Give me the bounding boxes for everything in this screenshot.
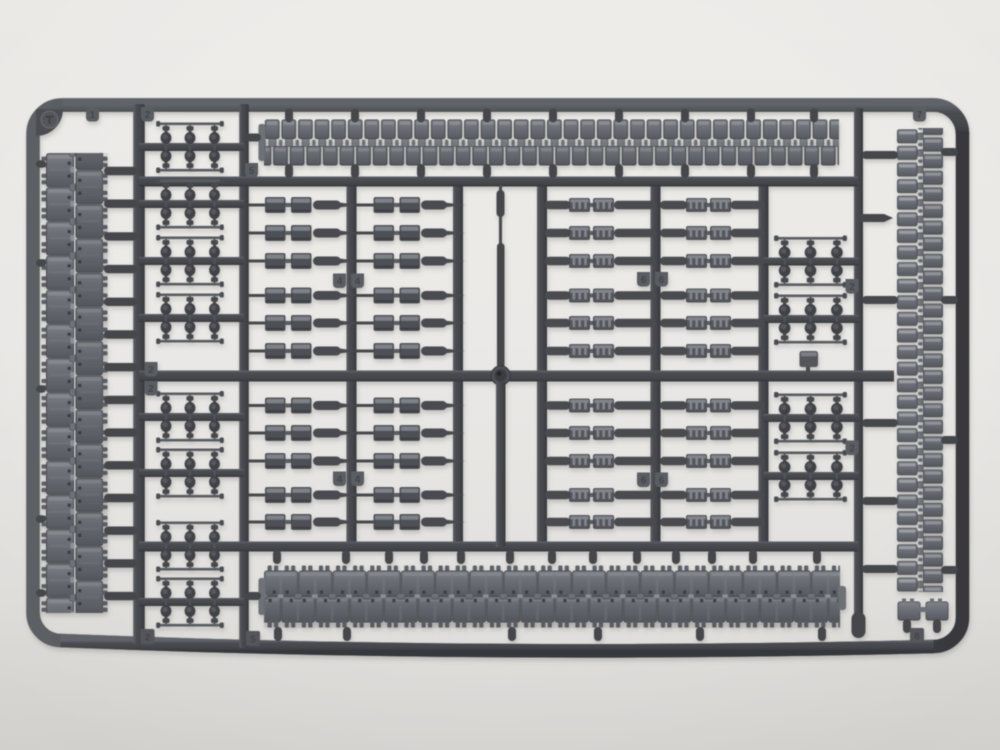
svg-text:2: 2: [148, 384, 154, 395]
svg-text:6: 6: [641, 275, 647, 286]
svg-text:4: 4: [355, 474, 361, 485]
svg-text:5: 5: [249, 166, 255, 177]
svg-text:2: 2: [849, 282, 855, 293]
svg-text:2: 2: [849, 443, 855, 454]
svg-text:1: 1: [90, 110, 96, 121]
svg-text:6: 6: [641, 475, 647, 486]
svg-text:4: 4: [337, 474, 343, 485]
svg-text:4: 4: [337, 276, 343, 287]
svg-text:2: 2: [148, 365, 154, 376]
svg-text:8: 8: [914, 632, 920, 643]
svg-text:6: 6: [659, 475, 665, 486]
svg-text:2: 2: [145, 633, 151, 644]
svg-text:4: 4: [355, 276, 361, 287]
svg-text:6: 6: [659, 275, 665, 286]
svg-text:2: 2: [145, 110, 151, 121]
svg-text:7: 7: [917, 110, 923, 121]
svg-text:5: 5: [250, 635, 256, 646]
